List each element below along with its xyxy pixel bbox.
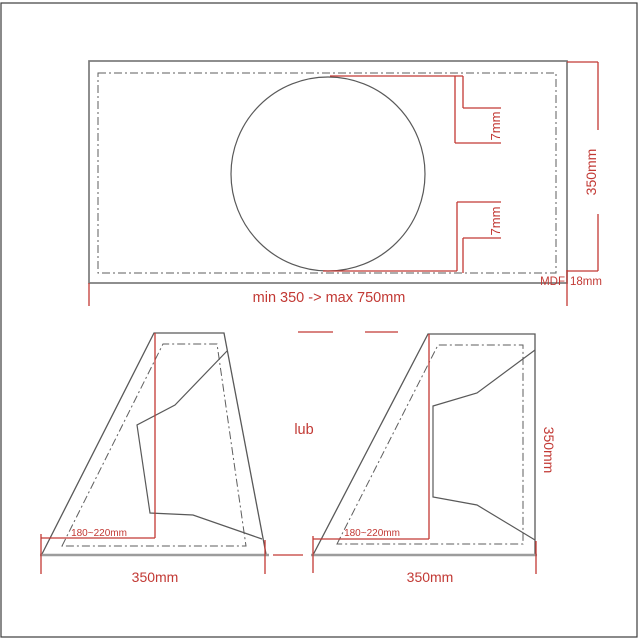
dimension-labels: 350mm 7mm 7mm min 350 -> max 750mm MDF 1…: [71, 112, 602, 585]
left-view-outline: [42, 333, 266, 554]
or-separator-label: lub: [294, 422, 313, 438]
top-view-inner-hidden-edge: [98, 73, 556, 273]
right-view-outline: [313, 334, 535, 555]
gap-bottom-label: 7mm: [488, 207, 503, 236]
speaker-box-drawing: 350mm 7mm 7mm min 350 -> max 750mm MDF 1…: [0, 0, 640, 640]
thickness-label: 18mm: [570, 276, 602, 288]
gap-bottom-dimension-lines: [323, 202, 501, 273]
right-view-inner-hidden-edge: [337, 345, 523, 544]
right-view-width-label: 350mm: [407, 569, 454, 585]
top-view: [89, 61, 598, 306]
right-view-driver-outline: [433, 350, 535, 540]
top-view-width-label: min 350 -> max 750mm: [253, 290, 406, 306]
left-view-driver-outline: [137, 351, 262, 539]
top-view-height-label: 350mm: [583, 149, 599, 196]
left-view-depth-label: 180~220mm: [71, 528, 127, 539]
right-view-depth-label: 180~220mm: [344, 528, 400, 539]
page-border: [1, 3, 637, 637]
speaker-cutout-circle: [231, 77, 425, 271]
left-view-width-label: 350mm: [132, 569, 179, 585]
right-view-height-label: 350mm: [541, 427, 557, 474]
top-view-outer-panel: [89, 61, 567, 283]
gap-top-label: 7mm: [488, 112, 503, 141]
material-label: MDF: [540, 276, 565, 288]
break-marks: [273, 332, 398, 555]
left-view-inner-hidden-edge: [62, 344, 246, 546]
technical-drawing-svg: 350mm 7mm 7mm min 350 -> max 750mm MDF 1…: [0, 0, 640, 640]
break-mark-dashes: [273, 332, 398, 555]
